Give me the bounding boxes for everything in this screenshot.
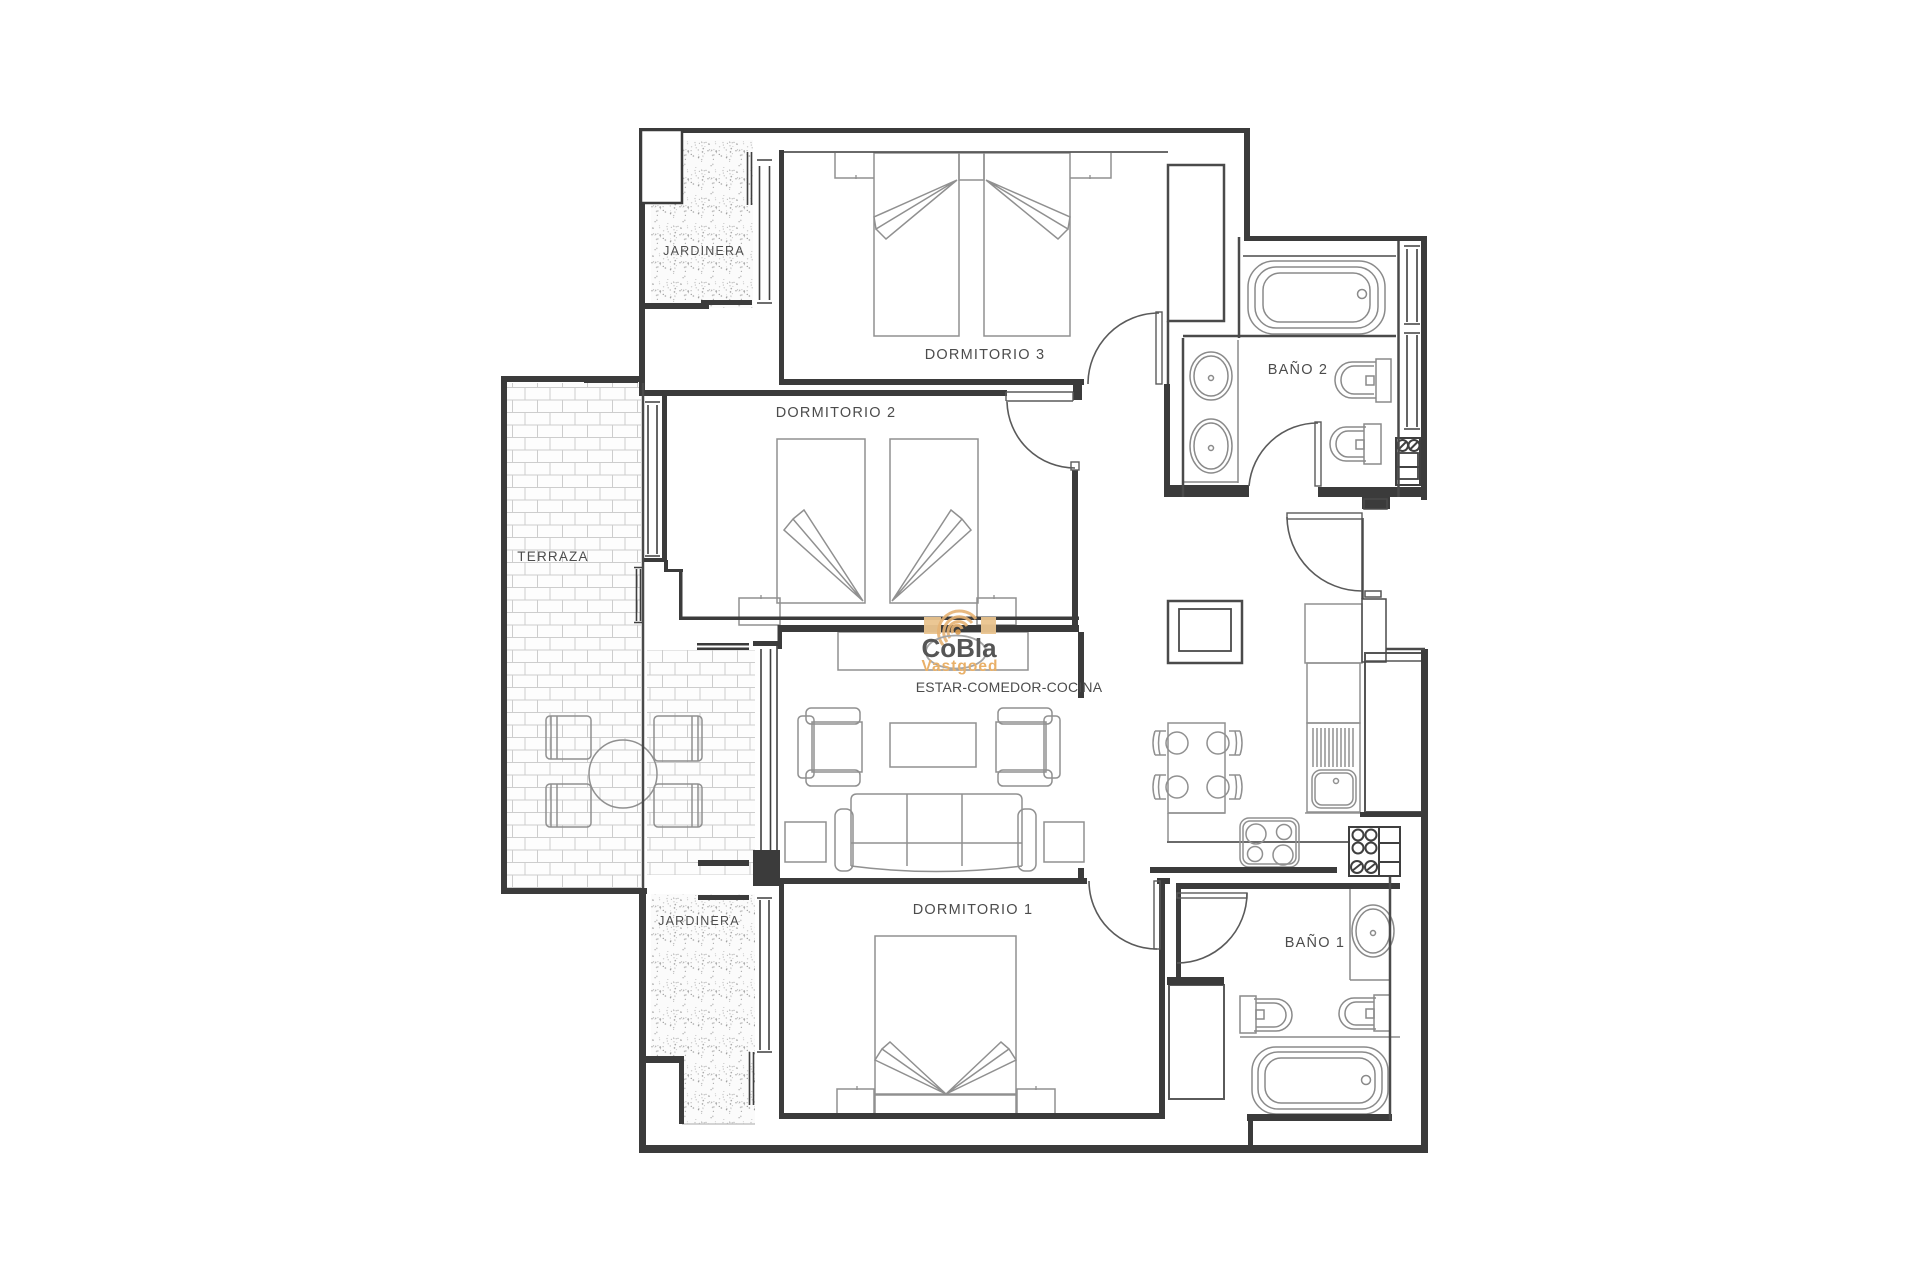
svg-text:JARDINERA: JARDINERA bbox=[663, 244, 745, 258]
svg-text:JARDINERA: JARDINERA bbox=[658, 914, 740, 928]
svg-text:BAÑO 1: BAÑO 1 bbox=[1285, 934, 1345, 951]
svg-text:TERRAZA: TERRAZA bbox=[517, 549, 588, 564]
svg-text:DORMITORIO 3: DORMITORIO 3 bbox=[925, 347, 1045, 363]
svg-text:Vastgoed: Vastgoed bbox=[922, 658, 999, 675]
svg-text:BAÑO 2: BAÑO 2 bbox=[1268, 361, 1328, 378]
svg-text:DORMITORIO 2: DORMITORIO 2 bbox=[776, 405, 896, 421]
svg-text:ESTAR-COMEDOR-COCINA: ESTAR-COMEDOR-COCINA bbox=[916, 679, 1103, 695]
svg-text:DORMITORIO 1: DORMITORIO 1 bbox=[913, 902, 1033, 918]
